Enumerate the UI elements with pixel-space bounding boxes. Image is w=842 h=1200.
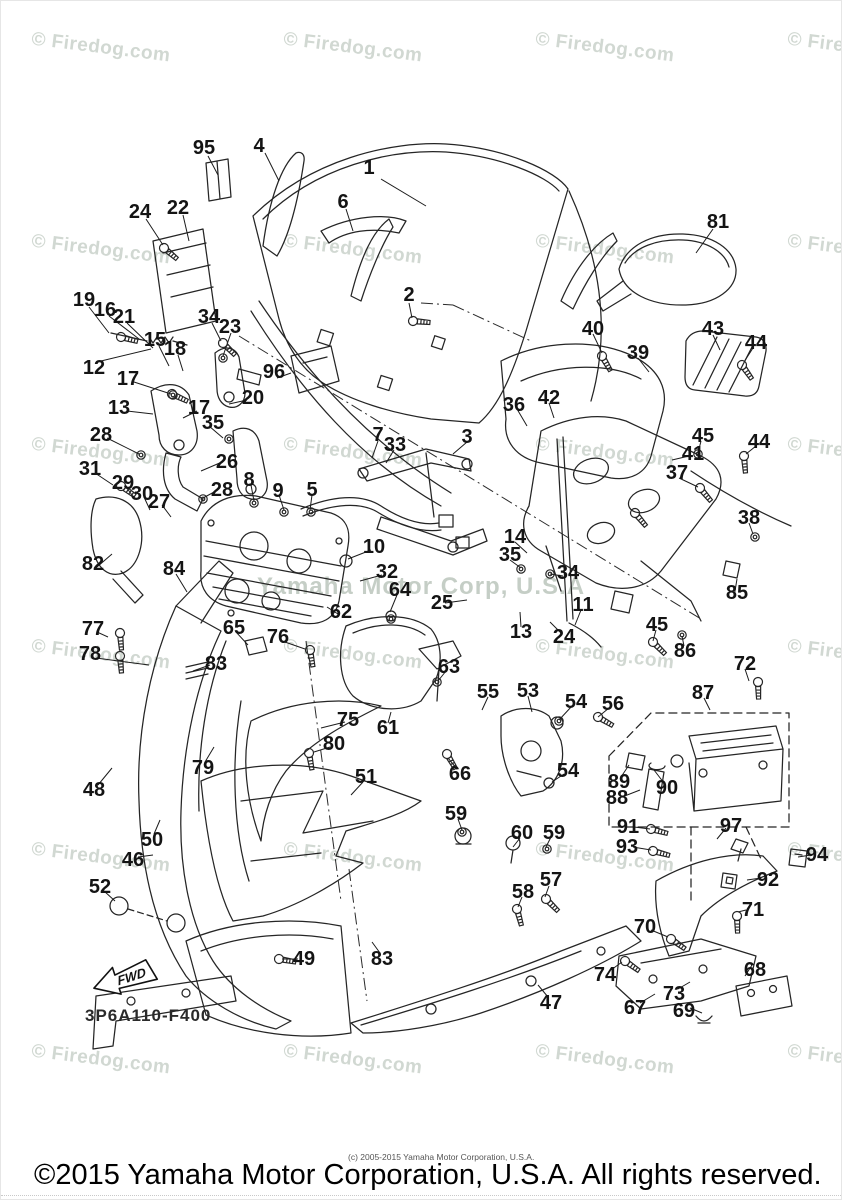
part-label-54: 54 — [557, 761, 579, 781]
part-label-26: 26 — [216, 452, 238, 472]
part-label-88: 88 — [606, 788, 628, 808]
part-label-12: 12 — [83, 358, 105, 378]
part-label-90: 90 — [656, 778, 678, 798]
part-label-38: 38 — [738, 508, 760, 528]
part-label-21: 21 — [113, 307, 135, 327]
part-label-44: 44 — [745, 333, 767, 353]
part-label-19: 19 — [73, 290, 95, 310]
part-label-34: 34 — [198, 307, 220, 327]
part-label-56: 56 — [602, 694, 624, 714]
part-label-67: 67 — [624, 998, 646, 1018]
part-label-31: 31 — [79, 459, 101, 479]
part-label-68: 68 — [744, 960, 766, 980]
part-label-24: 24 — [553, 627, 575, 647]
part-label-36: 36 — [503, 395, 525, 415]
part-label-76: 76 — [267, 627, 289, 647]
part-label-20: 20 — [242, 388, 264, 408]
part-label-28: 28 — [211, 480, 233, 500]
part-label-91: 91 — [617, 817, 639, 837]
part-label-75: 75 — [337, 710, 359, 730]
part-label-33: 33 — [384, 435, 406, 455]
part-label-27: 27 — [148, 492, 170, 512]
part-label-86: 86 — [674, 641, 696, 661]
part-label-71: 71 — [742, 900, 764, 920]
part-label-39: 39 — [627, 343, 649, 363]
part-label-3: 3 — [461, 427, 472, 447]
part-label-96: 96 — [263, 362, 285, 382]
part-label-13: 13 — [510, 622, 532, 642]
part-label-78: 78 — [79, 644, 101, 664]
part-label-63: 63 — [438, 657, 460, 677]
part-label-70: 70 — [634, 917, 656, 937]
part-label-85: 85 — [726, 583, 748, 603]
part-label-23: 23 — [219, 317, 241, 337]
part-label-60: 60 — [511, 823, 533, 843]
part-label-13: 13 — [108, 398, 130, 418]
part-label-34: 34 — [557, 563, 579, 583]
part-label-18: 18 — [164, 339, 186, 359]
part-label-11: 11 — [572, 595, 593, 615]
part-label-77: 77 — [82, 619, 104, 639]
part-label-84: 84 — [163, 559, 185, 579]
part-label-9: 9 — [272, 481, 283, 501]
part-label-59: 59 — [445, 804, 467, 824]
part-label-97: 97 — [720, 816, 742, 836]
part-label-61: 61 — [377, 718, 399, 738]
part-label-44: 44 — [748, 432, 770, 452]
part-label-5: 5 — [306, 480, 317, 500]
part-label-51: 51 — [355, 767, 377, 787]
part-label-35: 35 — [202, 413, 224, 433]
part-label-79: 79 — [192, 758, 214, 778]
part-label-93: 93 — [616, 837, 638, 857]
copyright-text: ©2015 Yamaha Motor Corporation, U.S.A. A… — [34, 1159, 822, 1192]
part-label-66: 66 — [449, 764, 471, 784]
part-label-45: 45 — [692, 426, 714, 446]
part-label-42: 42 — [538, 388, 560, 408]
part-label-52: 52 — [89, 877, 111, 897]
part-label-83: 83 — [205, 654, 227, 674]
part-label-94: 94 — [806, 845, 828, 865]
part-label-37: 37 — [666, 463, 688, 483]
part-label-81: 81 — [707, 212, 729, 232]
parts-diagram-page: Yamaha Motor Corp, U.S.A © Firedog.com© … — [0, 0, 842, 1200]
part-label-46: 46 — [122, 850, 144, 870]
part-label-15: 15 — [144, 330, 166, 350]
part-label-40: 40 — [582, 319, 604, 339]
part-label-25: 25 — [431, 593, 453, 613]
part-label-45: 45 — [646, 615, 668, 635]
part-label-22: 22 — [167, 198, 189, 218]
part-label-8: 8 — [243, 470, 254, 490]
part-label-49: 49 — [293, 949, 315, 969]
part-label-64: 64 — [389, 580, 411, 600]
part-label-47: 47 — [540, 993, 562, 1013]
part-label-48: 48 — [83, 780, 105, 800]
part-label-35: 35 — [499, 545, 521, 565]
part-label-55: 55 — [477, 682, 499, 702]
part-label-95: 95 — [193, 138, 215, 158]
part-label-82: 82 — [82, 554, 104, 574]
part-label-74: 74 — [594, 965, 616, 985]
part-label-10: 10 — [363, 537, 385, 557]
part-label-87: 87 — [692, 683, 714, 703]
part-label-92: 92 — [757, 870, 779, 890]
part-label-2: 2 — [403, 285, 414, 305]
part-label-83: 83 — [371, 949, 393, 969]
part-label-57: 57 — [540, 870, 562, 890]
part-label-1: 1 — [363, 158, 374, 178]
part-label-58: 58 — [512, 882, 534, 902]
part-label-7: 7 — [372, 425, 383, 445]
diagram-code: 3P6A110-F400 — [85, 1006, 211, 1026]
part-label-17: 17 — [117, 369, 139, 389]
part-label-59: 59 — [543, 823, 565, 843]
part-label-62: 62 — [330, 602, 352, 622]
part-label-28: 28 — [90, 425, 112, 445]
part-label-43: 43 — [702, 319, 724, 339]
part-label-65: 65 — [223, 618, 245, 638]
part-label-54: 54 — [565, 692, 587, 712]
part-label-69: 69 — [673, 1001, 695, 1021]
part-label-80: 80 — [323, 734, 345, 754]
part-label-4: 4 — [253, 136, 264, 156]
bottom-divider — [1, 1195, 841, 1196]
part-label-6: 6 — [337, 192, 348, 212]
part-label-41: 41 — [682, 444, 704, 464]
part-label-50: 50 — [141, 830, 163, 850]
part-label-53: 53 — [517, 681, 539, 701]
part-label-72: 72 — [734, 654, 756, 674]
part-label-24: 24 — [129, 202, 151, 222]
